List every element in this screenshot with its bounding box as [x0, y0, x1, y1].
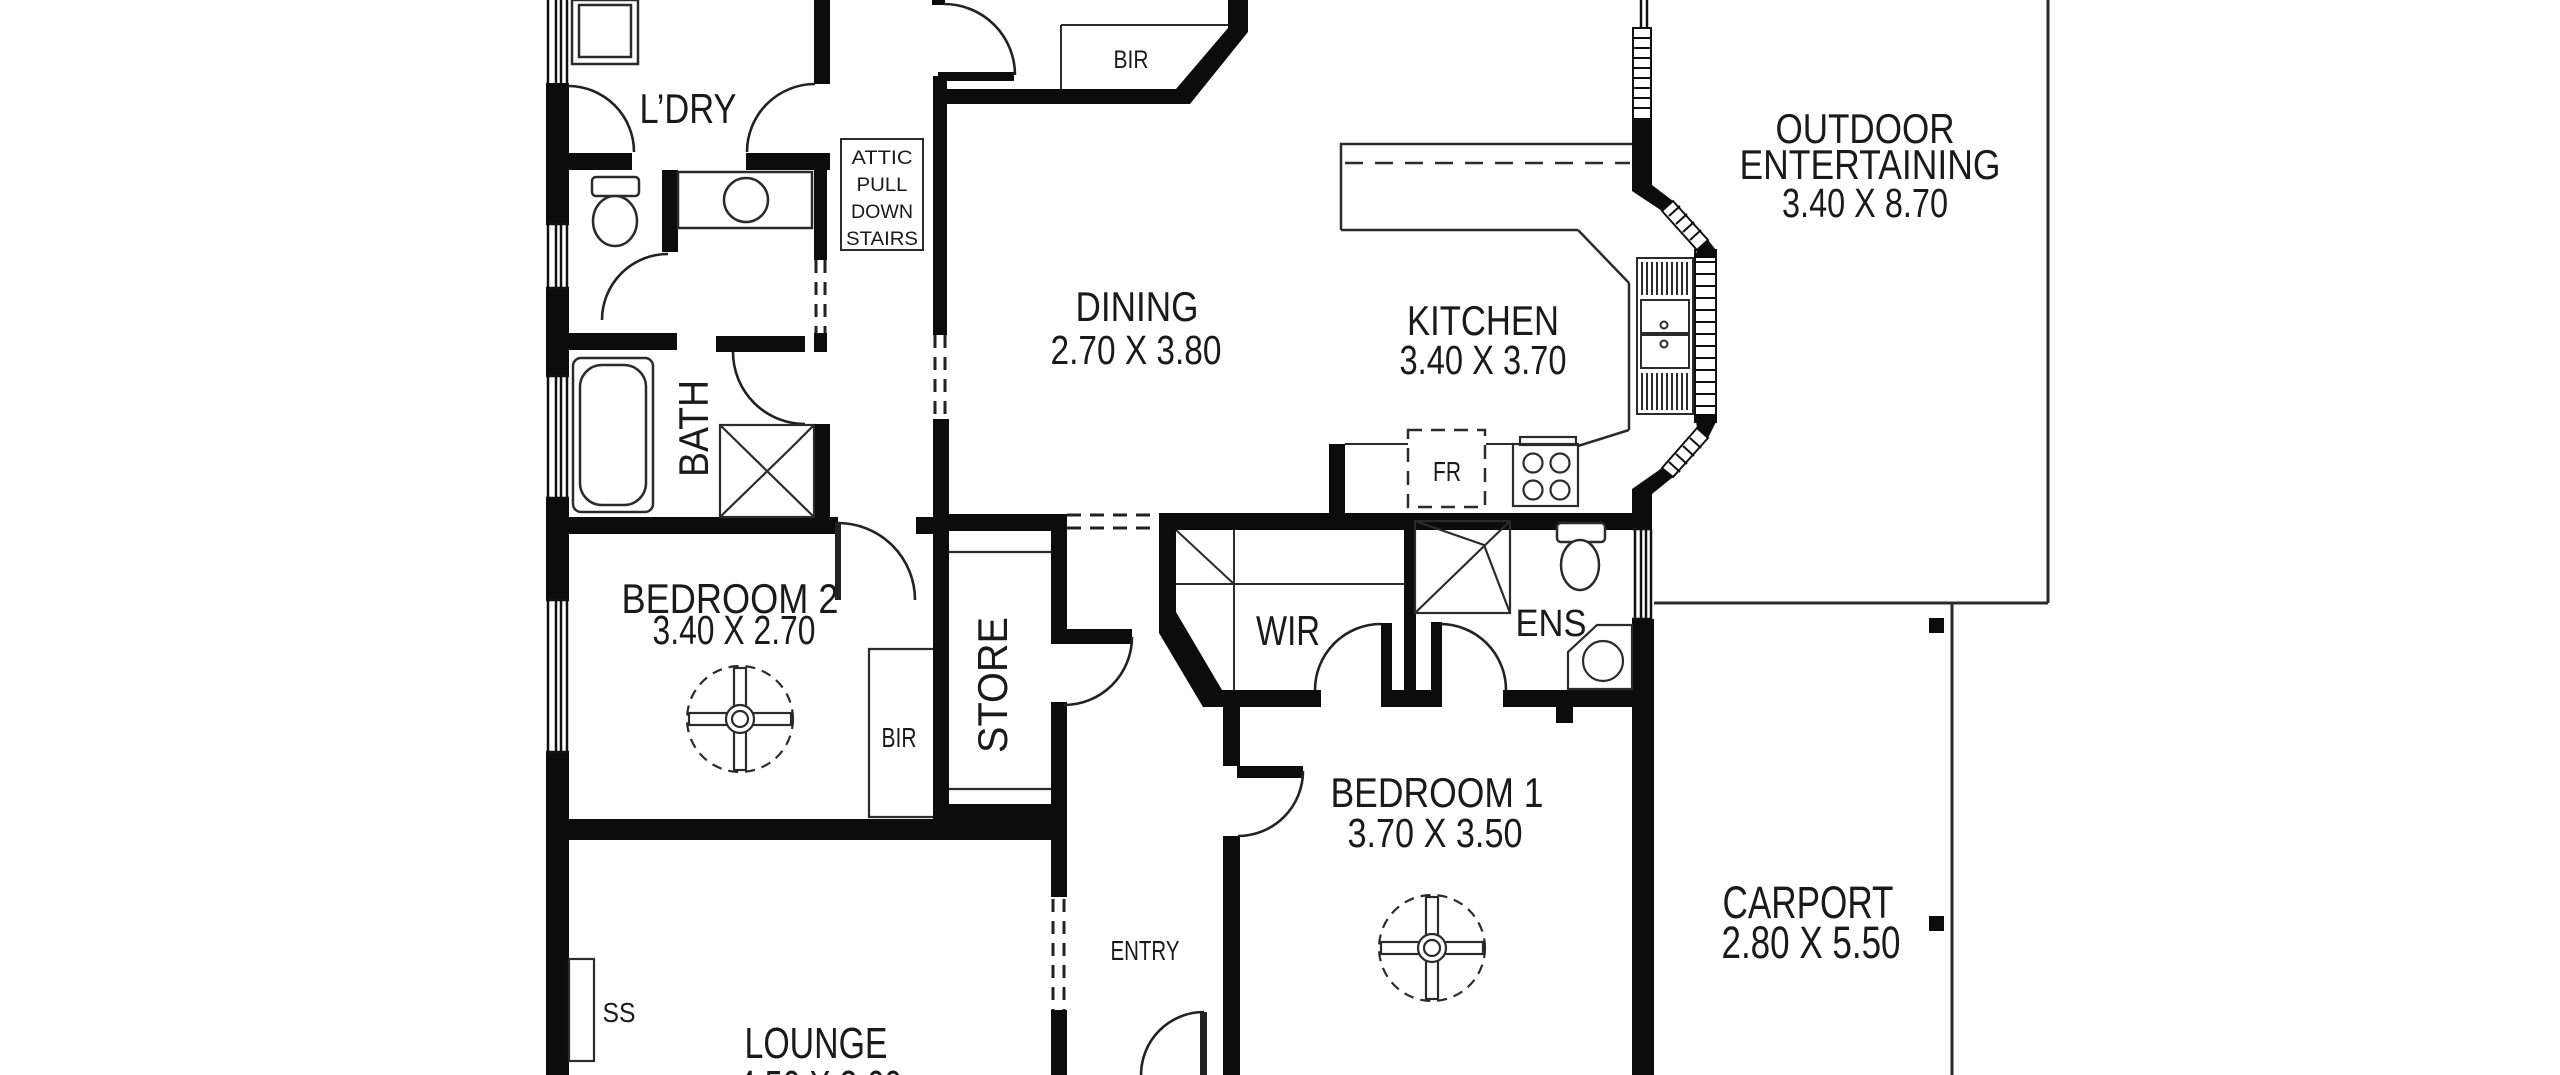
svg-text:DOWN: DOWN	[851, 202, 913, 223]
svg-text:ENTRY: ENTRY	[1111, 935, 1180, 966]
svg-text:ATTIC: ATTIC	[852, 148, 913, 169]
svg-text:ENS: ENS	[1516, 603, 1587, 645]
svg-text:3.40 X 8.70: 3.40 X 8.70	[1782, 180, 1948, 226]
svg-text:3.40 X 2.70: 3.40 X 2.70	[653, 607, 816, 653]
svg-text:LOUNGE: LOUNGE	[745, 1019, 888, 1068]
svg-text:BEDROOM 1: BEDROOM 1	[1331, 769, 1544, 816]
svg-text:STAIRS: STAIRS	[846, 229, 918, 250]
svg-text:PULL: PULL	[857, 175, 908, 196]
svg-text:WIR: WIR	[1256, 607, 1320, 654]
svg-text:3.40 X 3.70: 3.40 X 3.70	[1400, 337, 1567, 383]
svg-text:2.80 X 5.50: 2.80 X 5.50	[1722, 917, 1901, 968]
svg-text:3.70 X 3.50: 3.70 X 3.50	[1348, 810, 1523, 856]
svg-text:L’DRY: L’DRY	[640, 85, 737, 132]
svg-text:4.50 X 3.60: 4.50 X 3.60	[738, 1062, 902, 1075]
svg-text:FR: FR	[1433, 456, 1461, 487]
svg-text:SS: SS	[603, 997, 636, 1028]
svg-text:STORE: STORE	[969, 617, 1016, 753]
svg-text:BATH: BATH	[670, 380, 717, 477]
svg-text:DINING: DINING	[1076, 283, 1199, 330]
svg-text:BIR: BIR	[1114, 46, 1149, 74]
svg-text:BIR: BIR	[882, 722, 917, 753]
svg-text:2.70 X 3.80: 2.70 X 3.80	[1051, 327, 1222, 373]
